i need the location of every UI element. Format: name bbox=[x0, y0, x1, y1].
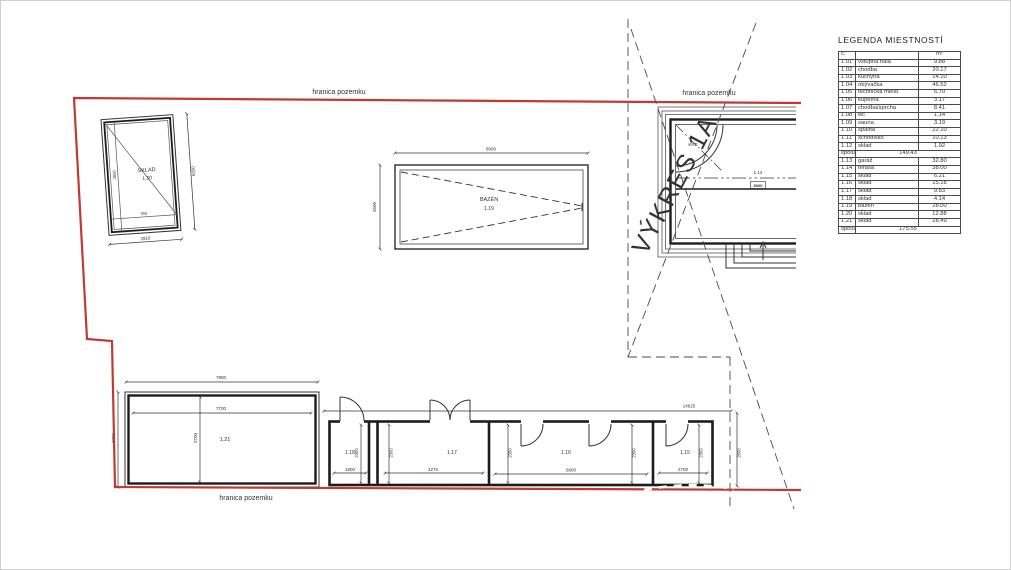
legend-cell-name: sklad bbox=[856, 196, 919, 204]
room-dim-side: 2300 bbox=[632, 448, 637, 458]
room-dim-side: 2300 bbox=[508, 448, 513, 458]
legend-cell-name: kúpeľňa bbox=[856, 97, 919, 105]
legend: LEGENDA MIESTNOSTÍ č.m²1.01vstupná hala9… bbox=[838, 35, 964, 234]
legend-cell-area: 20.17 bbox=[919, 67, 961, 75]
legend-cell-name: sklad bbox=[856, 143, 919, 151]
pool-number: 1.19 bbox=[484, 206, 494, 212]
legend-cell-area: 9.88 bbox=[919, 59, 961, 67]
legend-row: 1.17sklad9.83 bbox=[839, 188, 961, 196]
legend-cell-name: wc bbox=[856, 112, 919, 120]
legend-cell-no: 1.04 bbox=[839, 82, 856, 90]
legend-cell-area: 3.17 bbox=[919, 97, 961, 105]
legend-row: 1.02chodba20.17 bbox=[839, 67, 961, 75]
legend-cell-no: 1.18 bbox=[839, 196, 856, 204]
sklad-building: SKLAD 1.20 3910 760 2850 6350 bbox=[101, 113, 200, 244]
legend-header-no: č. bbox=[839, 52, 856, 60]
legend-cell-name: sklad bbox=[856, 181, 919, 189]
legend-row: 1.04obývačka46.52 bbox=[839, 82, 961, 90]
strip-dim-right: 2600 bbox=[737, 448, 742, 458]
pool-dim-left: 3500 bbox=[372, 201, 377, 212]
boundary-label-top-right: hranica pozemku bbox=[682, 90, 735, 97]
legend-cell-area: 1.92 bbox=[919, 143, 961, 151]
b121-dim-inner: 7700 bbox=[216, 406, 227, 411]
legend-cell-no: 1.01 bbox=[839, 59, 856, 67]
storage-strip: 14625 bbox=[324, 397, 742, 486]
legend-cell-area: 175.55 bbox=[856, 226, 961, 234]
legend-cell-no: 1.09 bbox=[839, 120, 856, 128]
legend-cell-area: 38.00 bbox=[919, 165, 961, 173]
steps bbox=[726, 242, 796, 268]
legend-cell-label: spolu bbox=[839, 226, 856, 234]
legend-row: 1.12sklad1.92 bbox=[839, 143, 961, 151]
room-label: 1.16 bbox=[561, 450, 571, 456]
sklad-number: 1.20 bbox=[142, 175, 152, 182]
legend-cell-no: 1.15 bbox=[839, 173, 856, 181]
legend-row: 1.08wc1.14 bbox=[839, 112, 961, 120]
legend-cell-area: 3.19 bbox=[919, 120, 961, 128]
legend-cell-name: bazén bbox=[856, 203, 919, 211]
legend-cell-area: 9.83 bbox=[919, 188, 961, 196]
legend-row: 1.15sklad6.21 bbox=[839, 173, 961, 181]
legend-cell-name: garáž bbox=[856, 158, 919, 166]
legend-cell-name: sklad bbox=[856, 173, 919, 181]
sklad-dim-inner-bottom: 760 bbox=[140, 211, 148, 217]
legend-row: 1.05technická miest.6.70 bbox=[839, 89, 961, 97]
legend-cell-name: sklad bbox=[856, 219, 919, 227]
legend-cell-no: 1.21 bbox=[839, 219, 856, 227]
legend-cell-no: 1.20 bbox=[839, 211, 856, 219]
room-dim-side: 2300 bbox=[354, 448, 359, 458]
legend-cell-name: spálňa bbox=[856, 127, 919, 135]
legend-row: 1.06kúpeľňa3.17 bbox=[839, 97, 961, 105]
legend-title: LEGENDA MIESTNOSTÍ bbox=[838, 35, 964, 45]
building-1-21: 7800 7700 3700 3800 1.21 bbox=[111, 375, 319, 487]
room-label: 1.17 bbox=[447, 450, 457, 456]
legend-cell-area: 12.88 bbox=[919, 211, 961, 219]
legend-row: 1.16sklad15.18 bbox=[839, 181, 961, 189]
legend-cell-area: 149.43 bbox=[856, 150, 961, 158]
legend-cell-name: kuchyňa bbox=[856, 74, 919, 82]
legend-cell-area: 4.14 bbox=[919, 196, 961, 204]
boundary-label-bottom: hranica pozemku bbox=[219, 495, 272, 502]
pool-name: BAZÉN bbox=[480, 196, 498, 203]
legend-cell-no: 1.14 bbox=[839, 165, 856, 173]
legend-row: 1.20sklad12.88 bbox=[839, 211, 961, 219]
legend-cell-name: sauna bbox=[856, 120, 919, 128]
legend-row: 1.13garáž32.80 bbox=[839, 158, 961, 166]
legend-cell-no: 1.11 bbox=[839, 135, 856, 143]
legend-header-area: m² bbox=[919, 52, 961, 60]
legend-cell-no: 1.13 bbox=[839, 158, 856, 166]
legend-cell-area: 14.10 bbox=[919, 74, 961, 82]
legend-row: 1.11schodisko10.13 bbox=[839, 135, 961, 143]
sklad-dim-bottom: 3910 bbox=[140, 235, 151, 241]
legend-row: 1.18sklad4.14 bbox=[839, 196, 961, 204]
room-dim: 4275 bbox=[428, 467, 439, 472]
drawing-sheet: SKLAD 1.20 3910 760 2850 6350 BAZÉN 1.19… bbox=[0, 0, 1011, 570]
legend-cell-area: 10.13 bbox=[919, 135, 961, 143]
legend-cell-name: vstupná hala bbox=[856, 59, 919, 67]
legend-row: 1.09sauna3.19 bbox=[839, 120, 961, 128]
pool-dim-top: 8000 bbox=[486, 147, 497, 152]
legend-cell-name: schodisko bbox=[856, 135, 919, 143]
legend-cell-no: 1.07 bbox=[839, 105, 856, 113]
legend-row: 1.03kuchyňa14.10 bbox=[839, 74, 961, 82]
legend-cell-name: chodba bbox=[856, 67, 919, 75]
legend-cell-name: terasa bbox=[856, 165, 919, 173]
legend-cell-name: sklad bbox=[856, 188, 919, 196]
legend-subtotal-row: spolu175.55 bbox=[839, 226, 961, 234]
room-label: 1.15 bbox=[680, 450, 690, 456]
legend-cell-no: 1.03 bbox=[839, 74, 856, 82]
legend-cell-name: obývačka bbox=[856, 82, 919, 90]
legend-cell-area: 6.21 bbox=[919, 173, 961, 181]
legend-cell-no: 1.12 bbox=[839, 143, 856, 151]
legend-cell-no: 1.17 bbox=[839, 188, 856, 196]
legend-cell-name: technická miest. bbox=[856, 89, 919, 97]
legend-row: 1.10spálňa22.10 bbox=[839, 127, 961, 135]
legend-cell-no: 1.06 bbox=[839, 97, 856, 105]
room-dim-side: 2300 bbox=[699, 448, 704, 458]
legend-cell-area: 1.14 bbox=[919, 112, 961, 120]
boundary-label-top-left: hranica pozemku bbox=[312, 89, 365, 96]
legend-subtotal-row: spolu149.43 bbox=[839, 150, 961, 158]
legend-row: 1.01vstupná hala9.88 bbox=[839, 59, 961, 67]
legend-cell-area: 32.80 bbox=[919, 158, 961, 166]
legend-cell-area: 6.70 bbox=[919, 89, 961, 97]
terasa-number: 1.14 bbox=[754, 170, 763, 175]
legend-row: 1.07chodba/sprcha8.41 bbox=[839, 105, 961, 113]
pool: BAZÉN 1.19 8000 3500 bbox=[372, 147, 588, 250]
legend-table: č.m²1.01vstupná hala9.881.02chodba20.171… bbox=[838, 51, 961, 234]
legend-row: 1.21sklad28.49 bbox=[839, 219, 961, 227]
legend-cell-no: 1.02 bbox=[839, 67, 856, 75]
sklad-name: SKLAD bbox=[137, 167, 155, 174]
legend-cell-no: 1.05 bbox=[839, 89, 856, 97]
legend-cell-no: 1.19 bbox=[839, 203, 856, 211]
legend-cell-area: 22.10 bbox=[919, 127, 961, 135]
legend-cell-name: sklad bbox=[856, 211, 919, 219]
b121-dim-mid: 3700 bbox=[193, 432, 198, 443]
legend-cell-area: 28.00 bbox=[919, 203, 961, 211]
b121-number: 1.21 bbox=[220, 437, 231, 443]
legend-table-body: č.m²1.01vstupná hala9.881.02chodba20.171… bbox=[839, 52, 961, 234]
legend-cell-area: 28.49 bbox=[919, 219, 961, 227]
b121-dim-top: 7800 bbox=[216, 375, 227, 380]
terasa-dim: 8000 bbox=[754, 183, 764, 188]
legend-cell-no: 1.08 bbox=[839, 112, 856, 120]
room-dim: 6600 bbox=[566, 468, 577, 473]
sklad-dim-inner-left: 2850 bbox=[111, 169, 117, 179]
room-dim: 2700 bbox=[678, 467, 689, 472]
legend-row: 1.19bazén28.00 bbox=[839, 203, 961, 211]
legend-cell-name: chodba/sprcha bbox=[856, 105, 919, 113]
room-dim-side: 2300 bbox=[389, 448, 394, 458]
legend-cell-area: 15.18 bbox=[919, 181, 961, 189]
legend-row: 1.14terasa38.00 bbox=[839, 165, 961, 173]
legend-header-name bbox=[856, 52, 919, 60]
legend-cell-area: 46.52 bbox=[919, 82, 961, 90]
legend-header-row: č.m² bbox=[839, 52, 961, 60]
legend-cell-no: 1.16 bbox=[839, 181, 856, 189]
sklad-dim-right: 6350 bbox=[190, 166, 196, 177]
strip-dim-top: 14625 bbox=[683, 404, 696, 409]
legend-cell-label: spolu bbox=[839, 150, 856, 158]
legend-cell-area: 8.41 bbox=[919, 105, 961, 113]
legend-cell-no: 1.10 bbox=[839, 127, 856, 135]
room-dim: 1800 bbox=[345, 467, 356, 472]
